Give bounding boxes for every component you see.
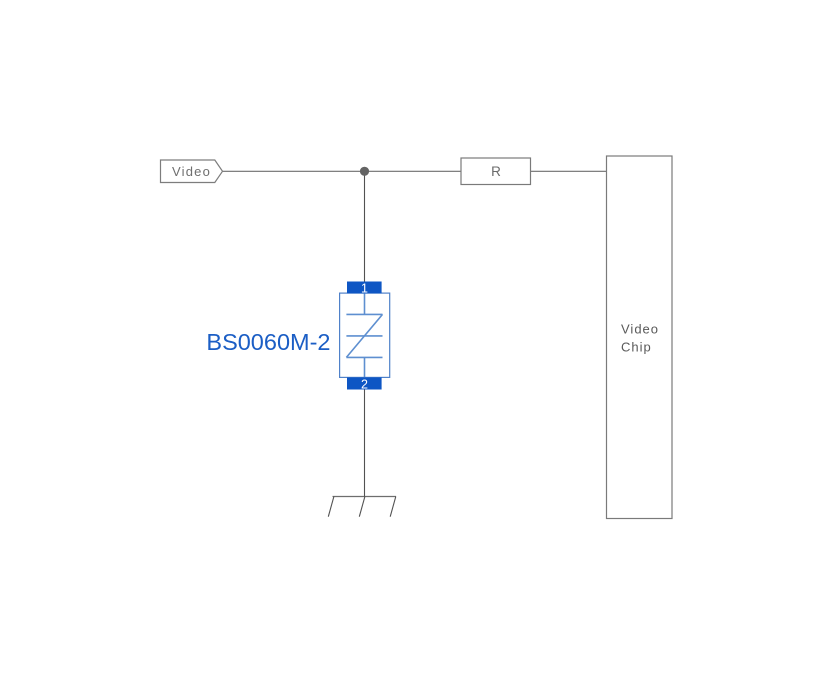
svg-text:R: R [491, 164, 501, 179]
svg-text:BS0060M-2: BS0060M-2 [206, 329, 330, 355]
svg-text:Video: Video [172, 164, 211, 179]
svg-text:1: 1 [361, 281, 368, 295]
svg-text:Chip: Chip [621, 340, 652, 355]
svg-text:Video: Video [621, 322, 659, 337]
svg-text:2: 2 [361, 378, 368, 392]
